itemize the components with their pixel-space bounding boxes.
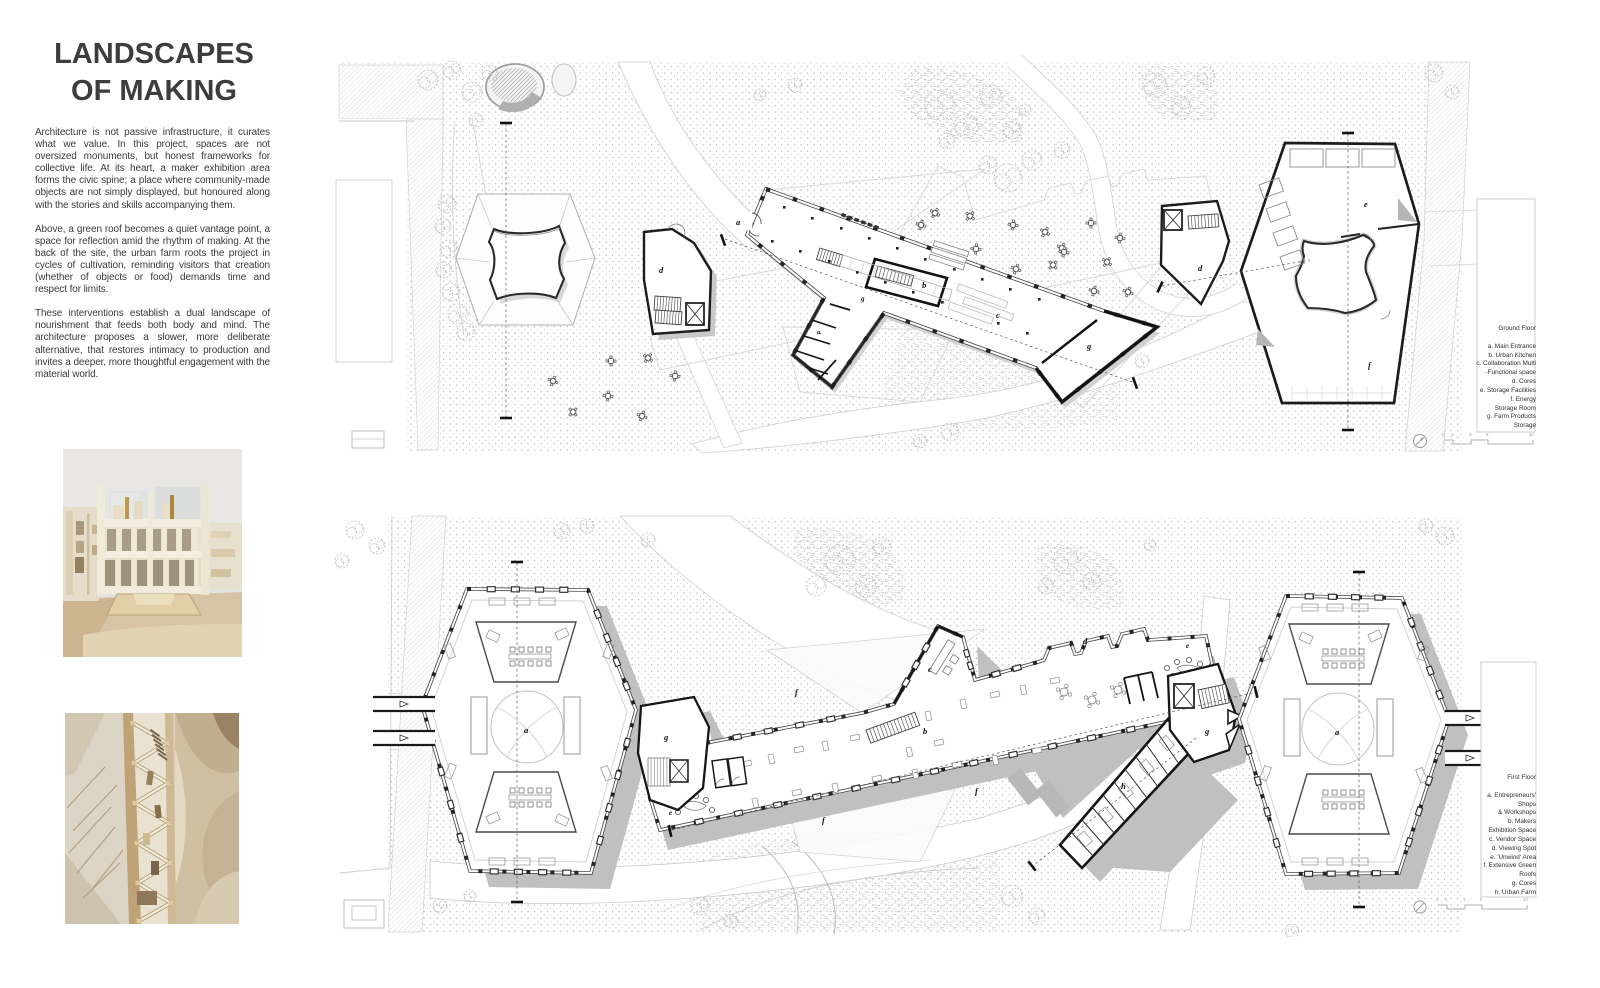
- svg-text:10: 10: [1529, 432, 1534, 437]
- svg-text:g: g: [663, 732, 669, 742]
- svg-text:5: 5: [1486, 432, 1489, 437]
- svg-text:g: g: [1204, 726, 1210, 736]
- svg-text:e: e: [1186, 642, 1189, 650]
- svg-text:b: b: [922, 280, 926, 290]
- svg-text:g: g: [1086, 341, 1092, 351]
- svg-text:a.: a.: [817, 329, 822, 336]
- svg-text:e: e: [669, 809, 672, 817]
- svg-text:g: g: [860, 295, 865, 303]
- svg-text:e: e: [1364, 199, 1368, 209]
- svg-text:h: h: [1121, 781, 1126, 791]
- svg-text:b: b: [923, 726, 927, 736]
- svg-text:c: c: [928, 664, 932, 674]
- svg-text:3: 3: [1469, 432, 1472, 437]
- svg-text:c: c: [996, 310, 1000, 320]
